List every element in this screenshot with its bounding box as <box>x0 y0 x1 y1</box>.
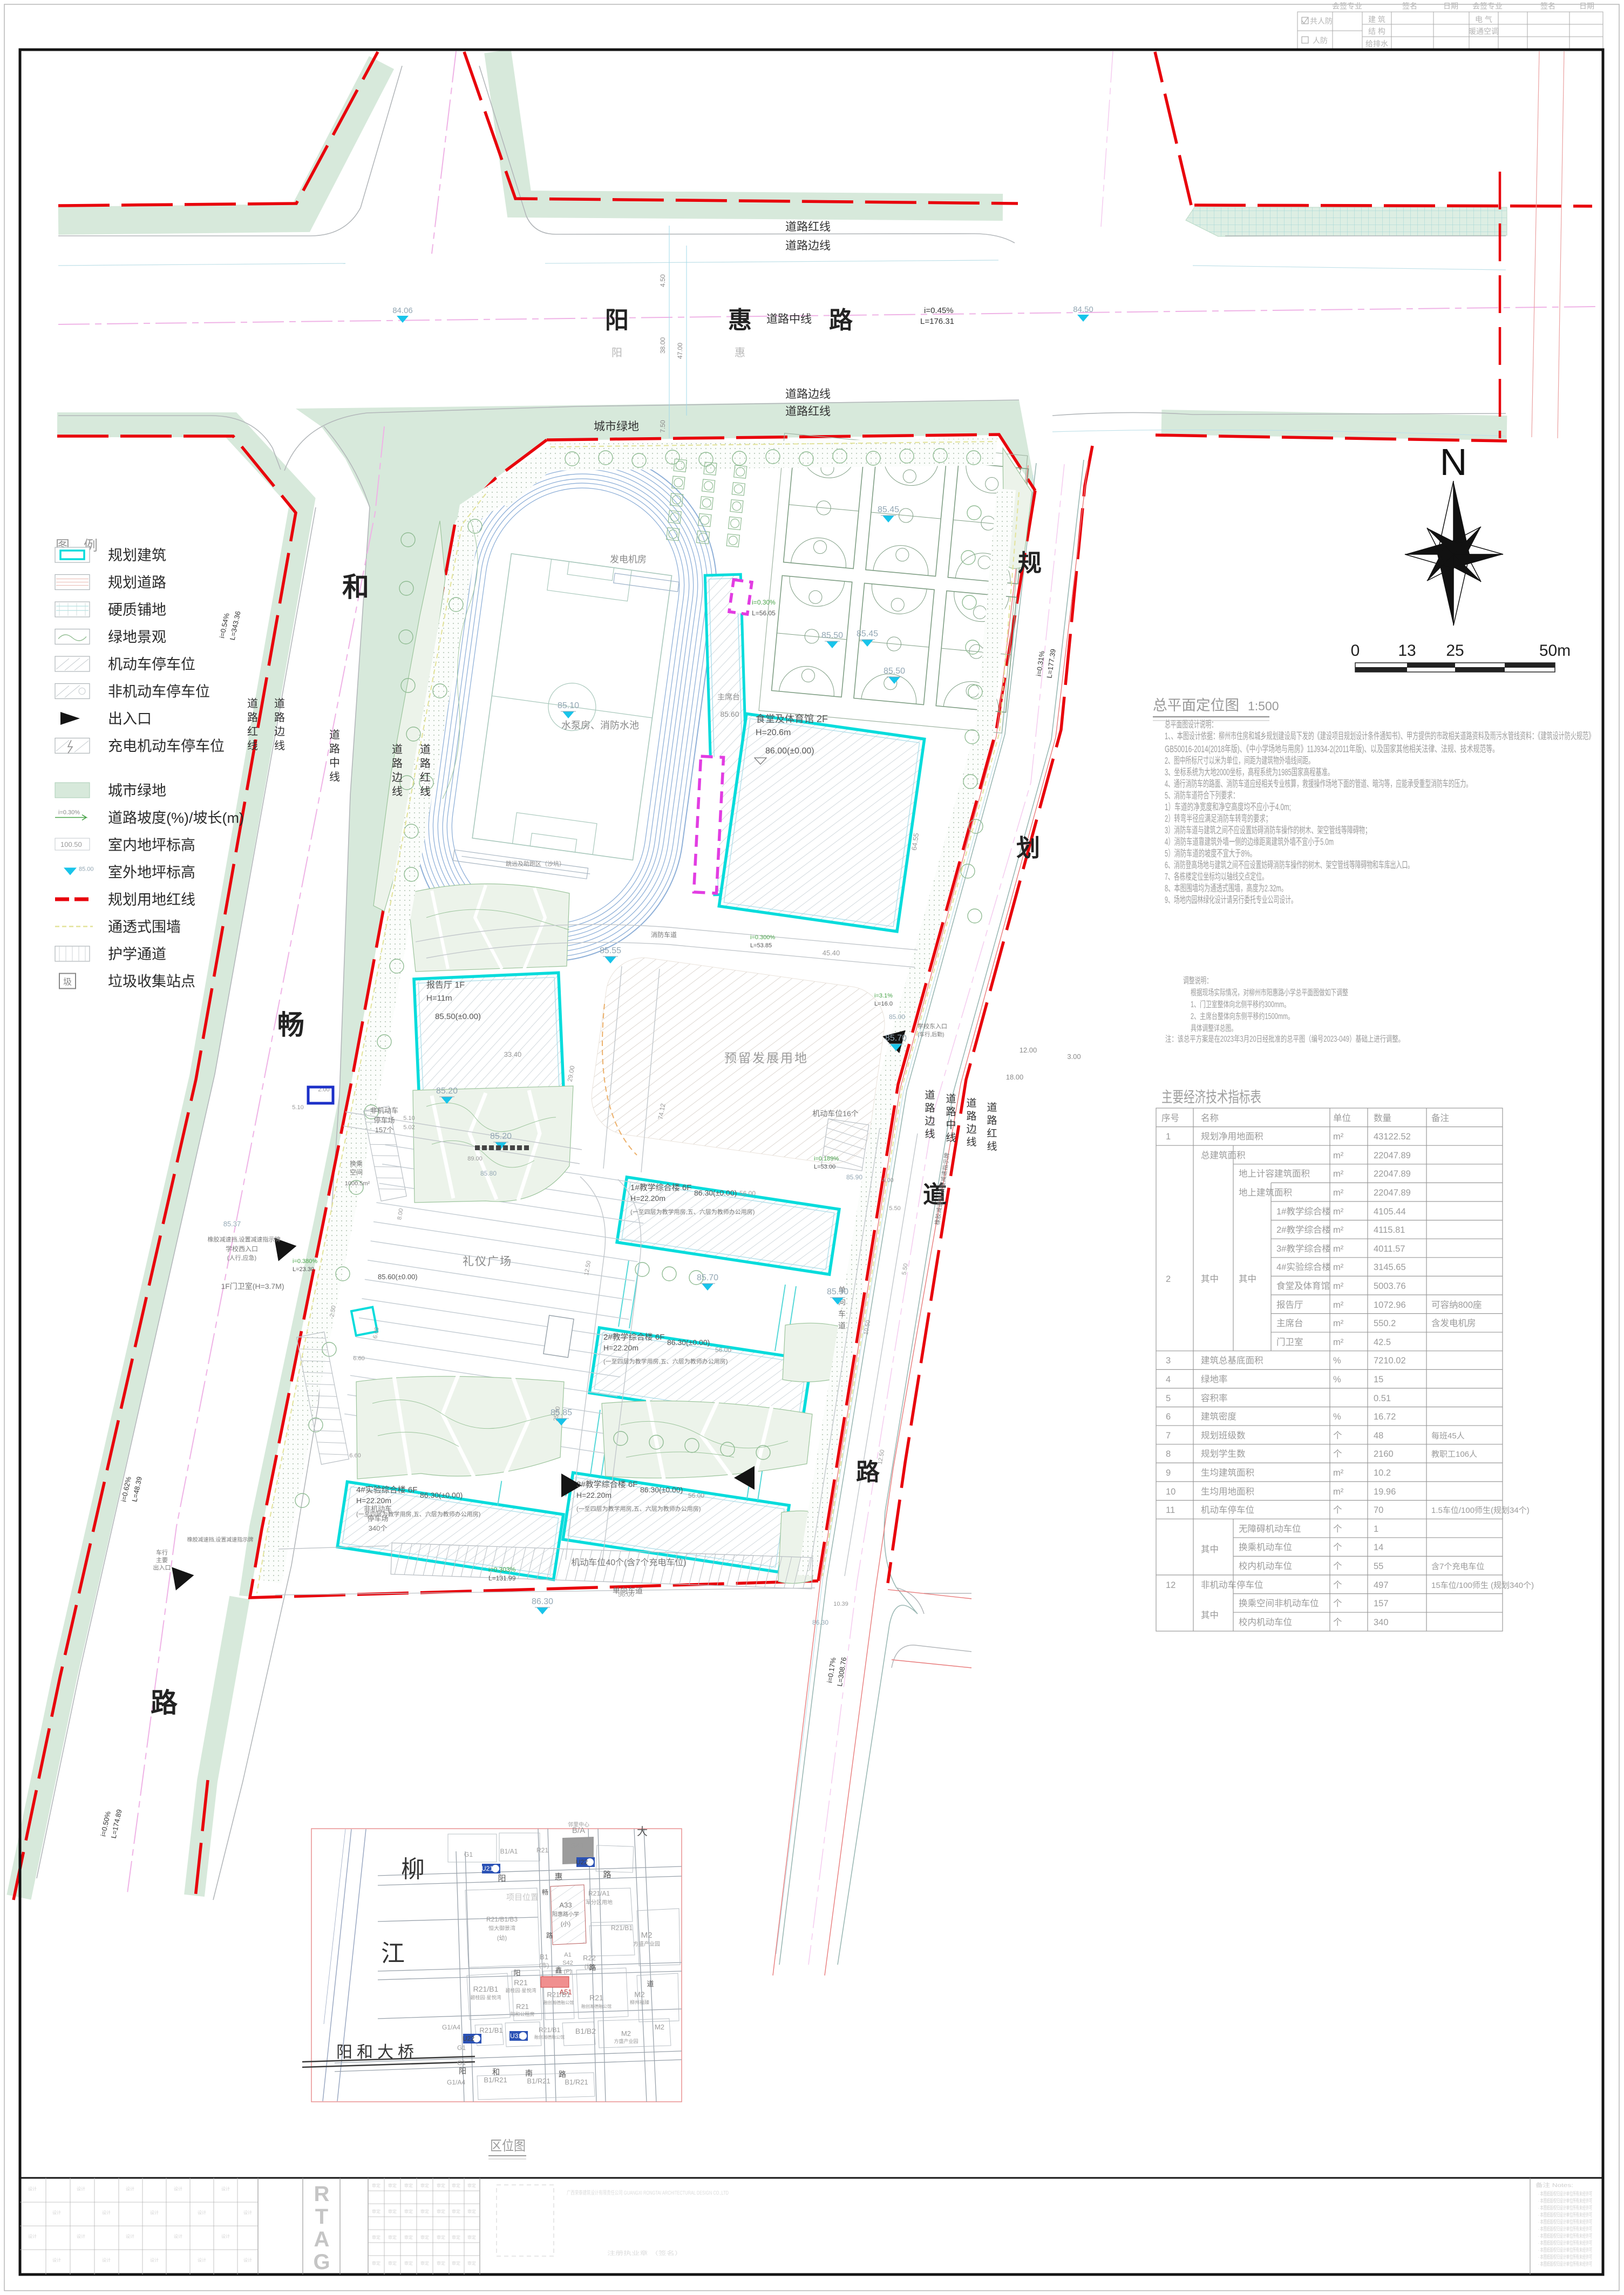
svg-text:R21/B1: R21/B1 <box>547 1991 570 1999</box>
svg-text:路: 路 <box>589 1964 596 1972</box>
svg-text:M2: M2 <box>634 1990 645 1999</box>
svg-text:29.00: 29.00 <box>566 1065 576 1082</box>
svg-text:设计: 设计 <box>221 2233 230 2239</box>
svg-text:14: 14 <box>1374 1543 1383 1552</box>
svg-text:审定: 审定 <box>372 2209 380 2214</box>
svg-text:道: 道 <box>274 697 285 710</box>
svg-text:路: 路 <box>420 757 431 770</box>
svg-text:审定: 审定 <box>467 2235 476 2240</box>
svg-text:8、本图围墙均为通透式围墙，高度为2.32m。: 8、本图围墙均为通透式围墙，高度为2.32m。 <box>1165 883 1287 894</box>
svg-text:审定: 审定 <box>452 2235 460 2240</box>
svg-text:86.00(±0.00): 86.00(±0.00) <box>765 746 814 756</box>
svg-text:R21/B1: R21/B1 <box>473 1985 499 1993</box>
svg-text:U21: U21 <box>481 1865 493 1872</box>
svg-text:m²: m² <box>1333 1300 1344 1310</box>
svg-text:L=56.05: L=56.05 <box>752 609 776 617</box>
svg-text:4: 4 <box>1166 1375 1171 1384</box>
svg-text:A: A <box>314 2228 330 2251</box>
svg-text:人防: 人防 <box>1313 36 1328 45</box>
svg-text:规划学生数: 规划学生数 <box>1201 1449 1246 1459</box>
svg-text:15车位/100师生 (规划340个): 15车位/100师生 (规划340个) <box>1431 1581 1534 1590</box>
svg-text:85.20: 85.20 <box>436 1087 458 1096</box>
svg-text:路: 路 <box>329 743 340 755</box>
svg-text:B1: B1 <box>540 1953 548 1961</box>
svg-text:学校东入口: 学校东入口 <box>918 1022 947 1030</box>
svg-text:11: 11 <box>1166 1505 1175 1515</box>
svg-text:1: 1 <box>1166 1132 1171 1142</box>
svg-text:R21/B1/B3: R21/B1/B3 <box>486 1916 518 1923</box>
svg-text:15: 15 <box>1374 1375 1383 1384</box>
svg-text:R21: R21 <box>536 1846 548 1854</box>
svg-text:R21: R21 <box>516 2002 529 2011</box>
svg-text:容积率: 容积率 <box>1201 1393 1228 1403</box>
svg-text:审定: 审定 <box>452 2209 460 2214</box>
svg-text:22047.89: 22047.89 <box>1374 1151 1411 1160</box>
svg-text:设计: 设计 <box>28 2233 37 2239</box>
svg-text:m²: m² <box>1333 1207 1344 1217</box>
svg-text:55: 55 <box>1374 1561 1383 1571</box>
svg-text:审定: 审定 <box>372 2235 380 2240</box>
svg-text:1: 1 <box>1374 1524 1378 1534</box>
svg-text:非机动车停车位: 非机动车停车位 <box>108 684 210 700</box>
svg-text:食堂及体育馆 2F: 食堂及体育馆 2F <box>756 714 828 724</box>
svg-text:审定: 审定 <box>467 2260 476 2266</box>
svg-text:设计: 设计 <box>243 2210 252 2215</box>
svg-text:无障碍机动车位: 无障碍机动车位 <box>1239 1524 1301 1534</box>
svg-text:调整说明：: 调整说明： <box>1183 976 1212 986</box>
svg-text:规: 规 <box>1018 550 1042 576</box>
svg-text:5003.76: 5003.76 <box>1374 1281 1406 1291</box>
svg-text:生均用地面积: 生均用地面积 <box>1201 1486 1254 1497</box>
svg-text:地上计容建筑面积: 地上计容建筑面积 <box>1239 1169 1310 1179</box>
svg-text:恒大御景湾: 恒大御景湾 <box>488 1925 515 1932</box>
svg-text:85.80: 85.80 <box>480 1170 497 1177</box>
svg-text:主要经济技术指标表: 主要经济技术指标表 <box>1161 1089 1261 1105</box>
svg-text:33.40: 33.40 <box>504 1050 522 1058</box>
svg-text:规划用地红线: 规划用地红线 <box>108 892 195 908</box>
svg-text:阳: 阳 <box>611 347 622 359</box>
svg-text:阳: 阳 <box>605 307 629 334</box>
svg-text:12.50: 12.50 <box>877 1449 886 1465</box>
svg-text:2.50: 2.50 <box>329 1305 337 1318</box>
svg-text:设计: 设计 <box>52 2210 61 2215</box>
svg-text:B1/A1: B1/A1 <box>500 1848 518 1855</box>
svg-text:· 本图纸版权归设计单位所有未经许可: · 本图纸版权归设计单位所有未经许可 <box>1538 2197 1592 2204</box>
svg-text:边: 边 <box>925 1115 935 1127</box>
svg-text:38.00: 38.00 <box>659 337 667 354</box>
svg-text:单位: 单位 <box>1333 1113 1351 1123</box>
svg-text:设计: 设计 <box>77 2186 85 2191</box>
svg-text:阳: 阳 <box>498 1874 506 1883</box>
svg-text:(P): (P) <box>564 1968 572 1975</box>
svg-text:2、主席台整体向东侧平移约1500mm。: 2、主席台整体向东侧平移约1500mm。 <box>1191 1011 1294 1021</box>
svg-text:划: 划 <box>1016 835 1040 861</box>
svg-text:校内机动车位: 校内机动车位 <box>1239 1617 1292 1627</box>
svg-text:A33: A33 <box>559 1901 572 1909</box>
svg-text:道: 道 <box>838 1321 846 1330</box>
svg-text:审定: 审定 <box>452 2183 460 2188</box>
svg-text:换乘机动车位: 换乘机动车位 <box>1239 1542 1292 1552</box>
svg-text:区位图: 区位图 <box>490 2138 526 2154</box>
svg-text:H=22.20m: H=22.20m <box>576 1491 611 1499</box>
svg-text:个: 个 <box>1333 1561 1342 1571</box>
svg-text:H=20.6m: H=20.6m <box>756 728 791 737</box>
svg-text:U22: U22 <box>576 1858 588 1866</box>
svg-text:S41: S41 <box>571 1841 585 1850</box>
svg-text:机动车位16个: 机动车位16个 <box>812 1109 859 1118</box>
svg-text:通透式围墙: 通透式围墙 <box>108 919 181 935</box>
svg-text:室内地坪标高: 室内地坪标高 <box>108 837 195 853</box>
svg-text:结 构: 结 构 <box>1368 27 1385 36</box>
svg-text:邻里中心: 邻里中心 <box>568 1821 589 1828</box>
svg-text:· 本图纸版权归设计单位所有未经许可: · 本图纸版权归设计单位所有未经许可 <box>1538 2211 1592 2218</box>
svg-text:路: 路 <box>559 2070 566 2079</box>
svg-text:R21/A1: R21/A1 <box>588 1890 610 1897</box>
svg-text:红: 红 <box>420 771 431 784</box>
svg-text:42.5: 42.5 <box>1374 1337 1391 1347</box>
svg-text:阳和公租房: 阳和公租房 <box>510 2011 534 2017</box>
svg-text:设计: 设计 <box>198 2257 206 2263</box>
svg-text:85.50(±0.00): 85.50(±0.00) <box>435 1012 481 1021</box>
svg-text:每班45人: 每班45人 <box>1431 1431 1465 1441</box>
svg-text:审定: 审定 <box>388 2183 397 2188</box>
svg-text:86.30: 86.30 <box>532 1597 553 1606</box>
svg-text:建 筑: 建 筑 <box>1368 15 1385 24</box>
svg-text:审定: 审定 <box>404 2209 413 2214</box>
svg-text:1F门卫室(H=3.7M): 1F门卫室(H=3.7M) <box>221 1282 284 1291</box>
svg-text:m²: m² <box>1333 1169 1344 1179</box>
svg-text:85.60: 85.60 <box>720 710 739 718</box>
svg-text:路: 路 <box>966 1110 976 1122</box>
svg-text:86.30(±0.00): 86.30(±0.00) <box>640 1485 683 1494</box>
svg-text:路: 路 <box>987 1115 997 1126</box>
svg-text:25: 25 <box>1446 642 1464 660</box>
svg-text:i=0.300%: i=0.300% <box>750 934 775 941</box>
svg-text:融创瀚德融公馆: 融创瀚德融公馆 <box>534 2034 565 2040</box>
svg-text:m²: m² <box>1333 1487 1344 1497</box>
svg-text:项目位置: 项目位置 <box>506 1893 539 1902</box>
svg-text:5: 5 <box>1166 1394 1171 1403</box>
svg-text:6.60: 6.60 <box>353 1355 364 1362</box>
svg-text:4115.81: 4115.81 <box>1374 1225 1405 1235</box>
svg-text:1#教学综合楼 6F: 1#教学综合楼 6F <box>630 1183 691 1192</box>
svg-text:方盛产业园: 方盛产业园 <box>633 1940 660 1947</box>
svg-text:护学通道: 护学通道 <box>108 946 166 962</box>
svg-text:边: 边 <box>966 1123 976 1135</box>
svg-text:R22: R22 <box>583 1954 596 1962</box>
svg-text:审定: 审定 <box>388 2209 397 2214</box>
svg-text:阳: 阳 <box>459 2067 466 2075</box>
svg-text:军分区用地: 军分区用地 <box>586 1899 613 1906</box>
svg-text:设计: 设计 <box>28 2186 37 2191</box>
svg-text:报告厅: 报告厅 <box>1276 1300 1303 1310</box>
svg-text:个: 个 <box>1333 1524 1342 1534</box>
svg-text:10.39: 10.39 <box>833 1601 848 1607</box>
svg-text:2: 2 <box>1166 1274 1171 1284</box>
svg-text:线: 线 <box>946 1132 956 1144</box>
svg-text:规划净用地面积: 规划净用地面积 <box>1201 1131 1263 1142</box>
svg-text:规划建筑: 规划建筑 <box>108 547 166 563</box>
svg-text:路: 路 <box>829 307 853 334</box>
svg-text:非机动车: 非机动车 <box>364 1505 392 1513</box>
svg-text:5.10: 5.10 <box>292 1104 303 1111</box>
svg-text:出入口: 出入口 <box>153 1564 171 1571</box>
svg-text:江: 江 <box>381 1940 405 1967</box>
svg-text:审定: 审定 <box>452 2260 460 2266</box>
svg-text:边: 边 <box>392 771 403 784</box>
svg-text:L=308.76: L=308.76 <box>835 1656 848 1687</box>
svg-text:充电机动车停车位: 充电机动车停车位 <box>108 738 225 755</box>
svg-text:审定: 审定 <box>404 2260 413 2266</box>
svg-text:M2: M2 <box>621 2029 631 2038</box>
svg-text:城市绿地: 城市绿地 <box>594 420 639 433</box>
svg-text:T: T <box>315 2205 328 2229</box>
svg-text:H=22.20m: H=22.20m <box>356 1496 391 1505</box>
svg-text:1000.5m²: 1000.5m² <box>345 1180 370 1187</box>
svg-text:H=22.20m: H=22.20m <box>603 1343 638 1352</box>
svg-text:门卫室: 门卫室 <box>1276 1337 1303 1347</box>
svg-text:审定: 审定 <box>388 2260 397 2266</box>
svg-text:2、图中所标尺寸以米为单位，间距为建筑物外墙线间距。: 2、图中所标尺寸以米为单位，间距为建筑物外墙线间距。 <box>1165 755 1314 766</box>
svg-text:审定: 审定 <box>404 2183 413 2188</box>
svg-text:路: 路 <box>247 711 258 724</box>
svg-text:43122.52: 43122.52 <box>1374 1132 1411 1142</box>
svg-text:i=0.30%: i=0.30% <box>58 810 80 816</box>
svg-text:2#教学综合楼 6F: 2#教学综合楼 6F <box>603 1333 664 1342</box>
svg-text:主席台: 主席台 <box>1276 1318 1303 1328</box>
svg-text:道: 道 <box>966 1097 976 1109</box>
svg-text:12.50: 12.50 <box>583 1260 593 1276</box>
svg-text:6.60: 6.60 <box>349 1452 361 1459</box>
svg-text:H=22.20m: H=22.20m <box>630 1194 665 1203</box>
svg-text:审定: 审定 <box>372 2260 380 2266</box>
svg-text:85.50: 85.50 <box>884 667 905 676</box>
svg-text:L=16.0: L=16.0 <box>874 1001 893 1007</box>
svg-text:南: 南 <box>525 2069 533 2077</box>
svg-text:停车场: 停车场 <box>367 1515 388 1523</box>
svg-text:道路红线: 道路红线 <box>785 221 831 233</box>
svg-text:A1: A1 <box>564 1952 571 1958</box>
svg-text:B1/B2: B1/B2 <box>575 2027 596 2035</box>
svg-text:道: 道 <box>925 1089 935 1101</box>
svg-text:个: 个 <box>1333 1542 1342 1552</box>
svg-text:(一至四层为教学用房,五、六层为教师办公用房): (一至四层为教学用房,五、六层为教师办公用房) <box>603 1357 728 1365</box>
svg-text:0.51: 0.51 <box>1374 1394 1391 1403</box>
svg-text:非机动车: 非机动车 <box>370 1106 398 1115</box>
svg-text:86.30: 86.30 <box>812 1619 828 1626</box>
svg-text:个: 个 <box>1333 1617 1342 1627</box>
svg-text:惠: 惠 <box>735 347 745 359</box>
svg-text:m²: m² <box>1333 1468 1344 1478</box>
svg-text:m²: m² <box>1333 1151 1344 1160</box>
svg-text:R: R <box>314 2182 330 2206</box>
svg-text:64.55: 64.55 <box>910 832 920 851</box>
svg-text:i=3.1%: i=3.1% <box>874 993 893 999</box>
svg-text:柳州福臻: 柳州福臻 <box>630 1999 649 2005</box>
svg-text:L=177.39: L=177.39 <box>1045 648 1057 678</box>
svg-text:85.70: 85.70 <box>885 1034 907 1043</box>
svg-text:路: 路 <box>392 757 403 770</box>
svg-text:R21/B1: R21/B1 <box>539 2026 560 2034</box>
svg-text:道: 道 <box>946 1093 956 1105</box>
svg-text:L=53.00: L=53.00 <box>814 1164 835 1170</box>
svg-text:报告厅 1F: 报告厅 1F <box>426 980 465 990</box>
svg-text:· 本图纸版权归设计单位所有未经许可: · 本图纸版权归设计单位所有未经许可 <box>1538 2190 1592 2197</box>
svg-text:7: 7 <box>1166 1431 1171 1441</box>
svg-text:红: 红 <box>247 725 258 738</box>
svg-text:路: 路 <box>546 1931 553 1939</box>
svg-text:m²: m² <box>1333 1132 1344 1142</box>
svg-text:4.50: 4.50 <box>659 274 667 287</box>
svg-text:56.00: 56.00 <box>688 1492 704 1499</box>
svg-text:其中: 其中 <box>1239 1274 1256 1284</box>
svg-text:审定: 审定 <box>467 2183 476 2188</box>
svg-text:线: 线 <box>392 785 403 798</box>
svg-text:5.50: 5.50 <box>901 1263 909 1275</box>
svg-text:(小): (小) <box>561 1920 570 1927</box>
svg-text:(一至四层为教学用房,五、六层为教师办公用房): (一至四层为教学用房,五、六层为教师办公用房) <box>576 1505 701 1512</box>
svg-text:惠: 惠 <box>554 1872 562 1882</box>
svg-text:U31: U31 <box>510 2032 522 2040</box>
svg-text:86.30(±0.00): 86.30(±0.00) <box>420 1491 463 1499</box>
svg-text:融创瀚德融公馆: 融创瀚德融公馆 <box>543 2000 574 2005</box>
svg-text:L=131.99: L=131.99 <box>488 1574 516 1582</box>
svg-text:(幼): (幼) <box>497 1934 507 1941</box>
svg-text:H=11m: H=11m <box>426 994 452 1003</box>
svg-text:6: 6 <box>1166 1412 1171 1422</box>
svg-text:4#实验综合楼: 4#实验综合楼 <box>1276 1262 1331 1272</box>
svg-text:85.37: 85.37 <box>223 1220 241 1228</box>
svg-text:G1: G1 <box>457 2059 466 2067</box>
svg-text:设计: 设计 <box>198 2210 206 2215</box>
svg-text:0: 0 <box>1351 642 1360 660</box>
svg-text:G: G <box>313 2250 330 2274</box>
svg-text:85.10: 85.10 <box>558 701 579 710</box>
svg-text:10: 10 <box>1166 1487 1175 1497</box>
svg-text:i=0.31%: i=0.31% <box>1035 650 1047 676</box>
svg-text:室外地坪标高: 室外地坪标高 <box>108 865 195 881</box>
svg-text:L=23.30: L=23.30 <box>293 1266 314 1273</box>
svg-text:审定: 审定 <box>437 2183 445 2188</box>
svg-text:审定: 审定 <box>420 2235 429 2240</box>
svg-text:阳惠路小学: 阳惠路小学 <box>552 1911 579 1918</box>
svg-text:审定: 审定 <box>420 2183 429 2188</box>
svg-text:3.00: 3.00 <box>1067 1053 1081 1061</box>
svg-text:数量: 数量 <box>1374 1113 1391 1123</box>
svg-text:4105.44: 4105.44 <box>1374 1207 1406 1217</box>
svg-text:车行: 车行 <box>156 1549 168 1556</box>
svg-text:电 气: 电 气 <box>1475 15 1492 24</box>
svg-text:路: 路 <box>925 1102 935 1114</box>
svg-text:12: 12 <box>1166 1580 1175 1590</box>
svg-text:2#教学综合楼: 2#教学综合楼 <box>1276 1225 1331 1235</box>
svg-text:G1/A4: G1/A4 <box>447 2079 465 2086</box>
svg-text:7.50: 7.50 <box>659 420 667 433</box>
svg-text:道: 道 <box>392 743 403 756</box>
svg-text:建筑密度: 建筑密度 <box>1201 1411 1236 1422</box>
svg-text:预留发展用地: 预留发展用地 <box>724 1051 808 1065</box>
svg-text:5.02: 5.02 <box>403 1124 415 1131</box>
svg-text:主席台: 主席台 <box>717 692 740 701</box>
svg-text:· 本图纸版权归设计单位所有未经许可: · 本图纸版权归设计单位所有未经许可 <box>1538 2246 1592 2253</box>
svg-text:m²: m² <box>1333 1188 1344 1198</box>
svg-text:其中: 其中 <box>1201 1610 1219 1620</box>
svg-text:签名: 签名 <box>1540 2 1555 10</box>
svg-text:审定: 审定 <box>388 2235 397 2240</box>
svg-text:m²: m² <box>1333 1281 1344 1291</box>
svg-text:(车行,后勤): (车行,后勤) <box>918 1031 944 1038</box>
svg-text:8.00: 8.00 <box>396 1208 405 1220</box>
svg-text:方盛产业园: 方盛产业园 <box>614 2038 638 2044</box>
svg-text:道路红线: 道路红线 <box>785 405 831 418</box>
svg-text:道路中线: 道路中线 <box>766 313 812 325</box>
svg-text:85.45: 85.45 <box>878 505 899 514</box>
svg-text:阳和大桥: 阳和大桥 <box>336 2043 418 2061</box>
svg-text:红: 红 <box>987 1128 997 1139</box>
svg-text:绿地景观: 绿地景观 <box>108 629 166 646</box>
svg-text:4）消防车道靠建筑外墙一侧的边缘距离建筑外墙不宜小于5.0m: 4）消防车道靠建筑外墙一侧的边缘距离建筑外墙不宜小于5.0m <box>1165 837 1334 847</box>
svg-text:线: 线 <box>925 1128 935 1140</box>
svg-text:道: 道 <box>329 729 340 741</box>
svg-text:道: 道 <box>647 1980 654 1988</box>
svg-text:生均建筑面积: 生均建筑面积 <box>1201 1468 1254 1478</box>
svg-text:56.00: 56.00 <box>618 1591 634 1598</box>
svg-text:圾: 圾 <box>63 977 72 987</box>
svg-text:规划道路: 规划道路 <box>108 575 166 591</box>
svg-text:碧桂园·星悦湾: 碧桂园·星悦湾 <box>471 1994 501 2000</box>
svg-text:总平面图设计说明：: 总平面图设计说明： <box>1165 719 1217 730</box>
svg-text:融创瀚德融公馆: 融创瀚德融公馆 <box>581 2004 611 2009</box>
svg-text:R21: R21 <box>514 1978 528 1987</box>
svg-text:规划班级数: 规划班级数 <box>1201 1430 1246 1441</box>
svg-text:9: 9 <box>1166 1468 1171 1478</box>
svg-text:阳: 阳 <box>513 1969 520 1977</box>
svg-text:50m: 50m <box>1539 642 1571 660</box>
svg-text:发电机房: 发电机房 <box>610 554 647 565</box>
svg-text:16.72: 16.72 <box>1374 1412 1396 1422</box>
svg-text:R21: R21 <box>589 1993 603 2002</box>
svg-text:其中: 其中 <box>1201 1274 1219 1284</box>
svg-text:89.00: 89.00 <box>467 1156 483 1162</box>
svg-text:道路边线: 道路边线 <box>785 240 831 252</box>
svg-text:设计: 设计 <box>102 2257 111 2263</box>
svg-text:5.50: 5.50 <box>889 1205 900 1212</box>
svg-text:i=0.380%: i=0.380% <box>293 1258 317 1265</box>
svg-text:食堂及体育馆: 食堂及体育馆 <box>1276 1281 1330 1291</box>
svg-text:4011.57: 4011.57 <box>1374 1244 1405 1254</box>
svg-text:9、场地内园林绿化设计请另行委托专业公司设计。: 9、场地内园林绿化设计请另行委托专业公司设计。 <box>1165 894 1297 905</box>
svg-text:85.00: 85.00 <box>79 866 94 873</box>
svg-text:R21/B1: R21/B1 <box>479 2026 502 2034</box>
svg-text:个: 个 <box>1333 1598 1342 1608</box>
svg-text:硬质铺地: 硬质铺地 <box>108 602 166 618</box>
svg-text:中: 中 <box>329 757 340 769</box>
svg-text:1#教学综合楼: 1#教学综合楼 <box>1276 1206 1331 1217</box>
svg-text:和: 和 <box>342 572 369 602</box>
svg-text:S42: S42 <box>562 1960 573 1966</box>
svg-text:4、通行消防车的路面、消防车道应经相关专业核算，救援操作场地: 4、通行消防车的路面、消防车道应经相关专业核算，救援操作场地下面的管道、暗沟等，… <box>1165 778 1472 789</box>
svg-text:审定: 审定 <box>437 2260 445 2266</box>
svg-text:校内机动车位: 校内机动车位 <box>1239 1561 1292 1571</box>
svg-text:道: 道 <box>420 743 431 756</box>
svg-text:橡胶减速挡,设置减速指示牌: 橡胶减速挡,设置减速指示牌 <box>187 1536 254 1543</box>
svg-text:GB50016-2014(2018年版)、《中小学场地与用房: GB50016-2014(2018年版)、《中小学场地与用房》11J934-2(… <box>1165 744 1499 755</box>
svg-text:56.00: 56.00 <box>739 1190 756 1197</box>
svg-text:审定: 审定 <box>372 2183 380 2188</box>
svg-text:设计: 设计 <box>174 2233 182 2239</box>
svg-text:G1/A4: G1/A4 <box>442 2024 460 2031</box>
svg-text:设计: 设计 <box>150 2210 159 2215</box>
